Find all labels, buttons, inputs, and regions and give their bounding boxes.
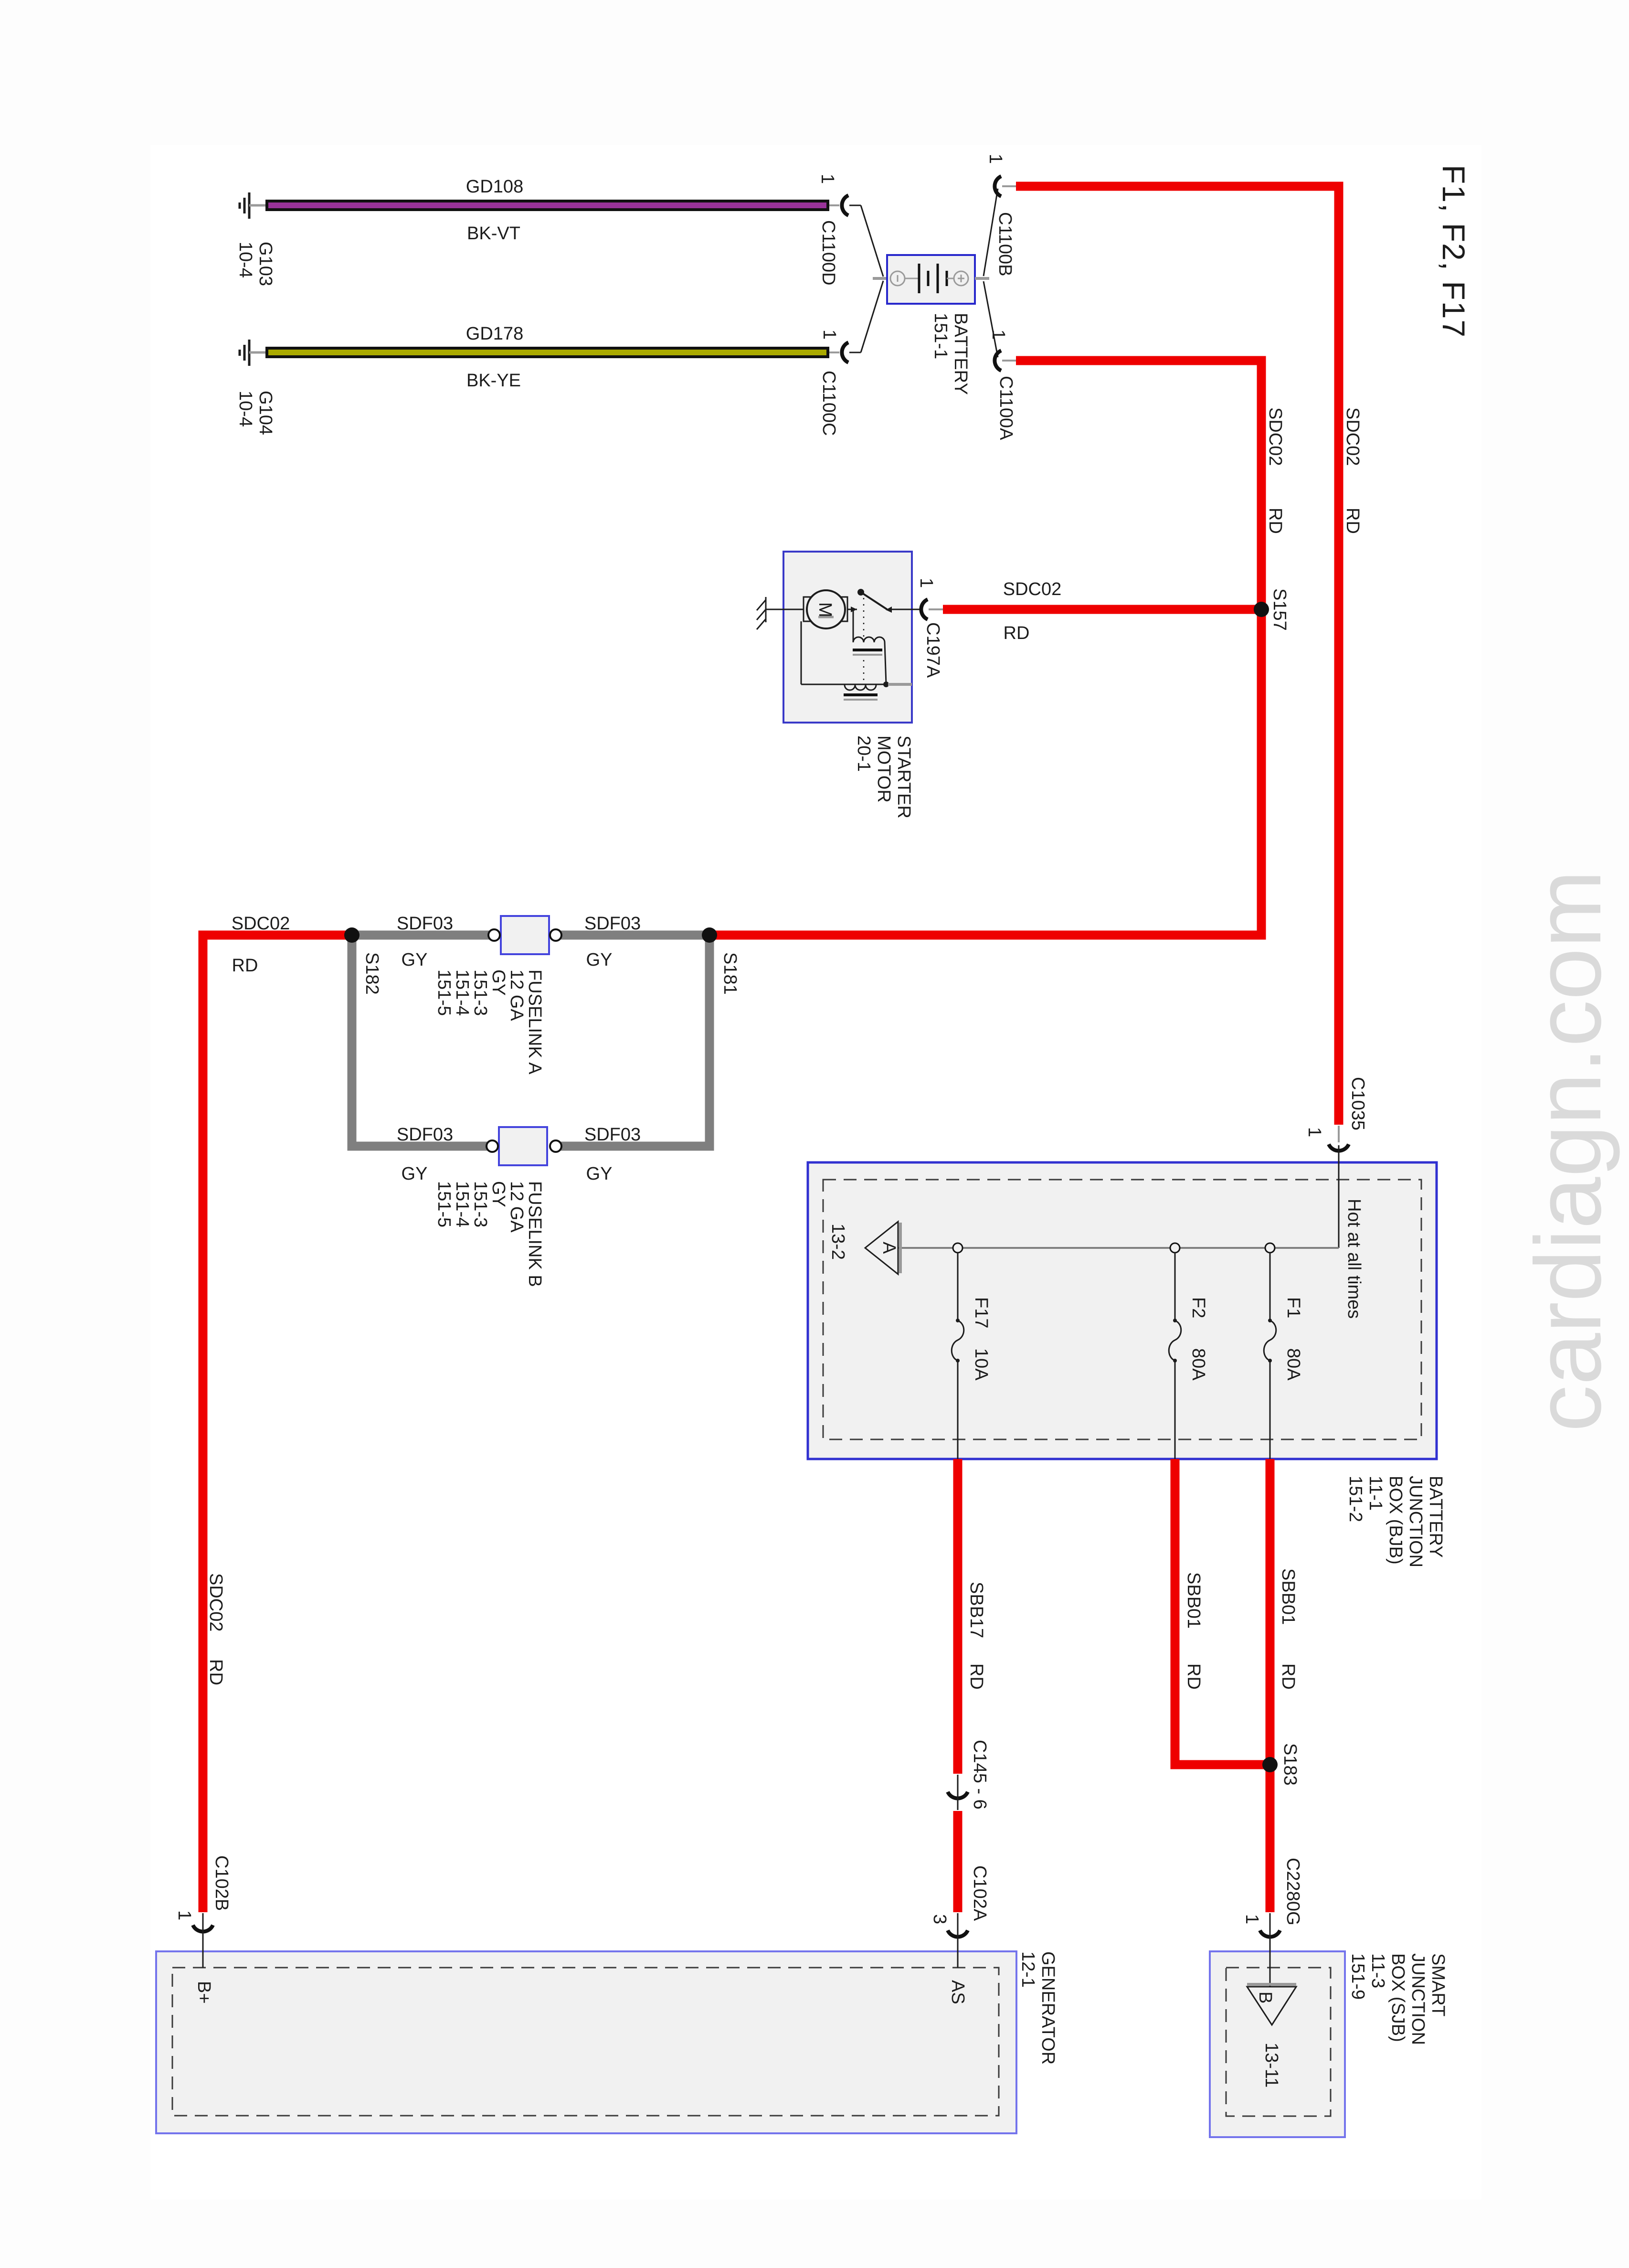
svg-text:AS: AS [948,1980,968,2004]
svg-text:JUNCTION: JUNCTION [1406,1476,1426,1567]
svg-text:C102A: C102A [970,1865,990,1921]
svg-text:S183: S183 [1280,1743,1300,1786]
svg-text:BK-VT: BK-VT [467,224,520,244]
svg-text:C145 - 6: C145 - 6 [970,1740,990,1810]
svg-text:SDC02: SDC02 [206,1573,226,1632]
svg-text:STARTER: STARTER [894,735,914,819]
svg-text:F1, F2, F17: F1, F2, F17 [1436,165,1471,338]
svg-text:151-3: 151-3 [470,969,490,1016]
svg-text:GY: GY [586,950,613,970]
svg-text:1: 1 [1304,1127,1324,1137]
svg-text:BATTERY: BATTERY [951,313,971,395]
svg-text:G103: G103 [255,242,275,286]
svg-text:C1035: C1035 [1348,1077,1368,1130]
svg-text:G104: G104 [255,391,275,435]
svg-text:C1100C: C1100C [819,371,839,436]
svg-text:BATTERY: BATTERY [1426,1476,1446,1558]
svg-text:10-4: 10-4 [235,391,255,427]
svg-text:C197A: C197A [923,622,943,678]
svg-text:13-2: 13-2 [828,1224,848,1260]
svg-text:Hot at all times: Hot at all times [1344,1199,1364,1319]
svg-text:C2280G: C2280G [1283,1858,1303,1926]
svg-text:B+: B+ [194,1981,214,2004]
svg-text:RD: RD [1343,508,1363,534]
svg-text:1: 1 [819,330,839,340]
svg-text:SDF03: SDF03 [397,1125,453,1145]
svg-text:SDC02: SDC02 [232,914,290,934]
svg-text:cardiagn.com: cardiagn.com [1516,870,1620,1432]
svg-text:12 GA: 12 GA [507,1181,527,1233]
svg-text:F17: F17 [971,1297,991,1328]
svg-text:S181: S181 [720,952,740,995]
svg-text:80A: 80A [1188,1348,1208,1381]
svg-text:151-2: 151-2 [1345,1476,1365,1522]
svg-text:C1100B: C1100B [995,212,1015,277]
svg-text:80A: 80A [1283,1348,1303,1381]
svg-text:GY: GY [402,1164,428,1184]
svg-text:GY: GY [402,950,428,970]
svg-text:GENERATOR: GENERATOR [1038,1951,1058,2065]
svg-text:GY: GY [488,969,508,996]
svg-text:A: A [879,1242,899,1254]
svg-text:RD: RD [1184,1663,1204,1690]
svg-text:10A: 10A [971,1348,991,1381]
svg-text:GY: GY [586,1164,613,1184]
svg-text:F2: F2 [1188,1297,1208,1318]
svg-text:RD: RD [1265,508,1285,534]
svg-text:FUSELINK A: FUSELINK A [525,969,545,1075]
svg-text:151-5: 151-5 [434,1181,454,1227]
svg-text:S157: S157 [1269,588,1290,631]
svg-text:151-9: 151-9 [1348,1953,1368,2000]
svg-text:GY: GY [488,1181,508,1207]
svg-text:GD108: GD108 [466,177,523,197]
svg-text:SBB01: SBB01 [1184,1572,1204,1629]
svg-text:RD: RD [1278,1663,1298,1690]
svg-text:SDF03: SDF03 [584,1125,641,1145]
svg-text:1: 1 [916,578,936,588]
svg-text:11-1: 11-1 [1365,1476,1386,1511]
svg-text:1: 1 [985,154,1005,164]
svg-text:20-1: 20-1 [854,735,874,772]
svg-text:RD: RD [966,1663,986,1690]
svg-text:151-1: 151-1 [931,313,951,359]
svg-text:151-4: 151-4 [452,969,472,1016]
svg-text:JUNCTION: JUNCTION [1408,1953,1428,2045]
svg-text:C1100A: C1100A [996,376,1016,440]
svg-text:BOX (SJB): BOX (SJB) [1388,1953,1408,2042]
svg-text:RD: RD [1004,623,1030,643]
svg-text:12 GA: 12 GA [507,969,527,1021]
svg-text:GD178: GD178 [466,324,523,344]
svg-text:151-3: 151-3 [470,1181,490,1227]
svg-text:FUSELINK B: FUSELINK B [525,1181,545,1287]
svg-text:RD: RD [232,956,258,976]
svg-text:SDF03: SDF03 [397,914,453,934]
svg-text:1: 1 [988,330,1008,340]
svg-text:12-1: 12-1 [1018,1951,1038,1988]
svg-text:BOX (BJB): BOX (BJB) [1386,1476,1406,1565]
svg-text:SMART: SMART [1428,1953,1448,2016]
svg-text:10-4: 10-4 [235,242,255,278]
svg-text:SDC02: SDC02 [1003,579,1062,599]
svg-text:SDC02: SDC02 [1343,407,1363,466]
svg-text:BK-YE: BK-YE [466,371,521,391]
svg-text:SDF03: SDF03 [584,914,641,934]
svg-text:S182: S182 [362,952,382,995]
svg-text:RD: RD [206,1659,226,1685]
svg-text:1: 1 [1242,1914,1262,1924]
svg-text:SBB17: SBB17 [966,1582,986,1638]
svg-text:F1: F1 [1283,1297,1303,1318]
svg-text:13-11: 13-11 [1261,2043,1281,2087]
svg-text:151-5: 151-5 [434,969,454,1016]
svg-text:MOTOR: MOTOR [874,735,894,803]
svg-text:11-3: 11-3 [1368,1953,1388,1988]
svg-text:SBB01: SBB01 [1278,1568,1298,1625]
svg-text:C102B: C102B [212,1855,232,1911]
svg-text:C1100D: C1100D [818,220,838,286]
svg-text:1: 1 [817,174,837,184]
svg-text:1: 1 [174,1910,194,1920]
svg-text:B: B [1255,1991,1275,2003]
svg-text:M: M [815,602,835,618]
svg-text:151-4: 151-4 [452,1181,472,1227]
svg-text:SDC02: SDC02 [1265,407,1285,466]
svg-text:3: 3 [930,1914,950,1924]
